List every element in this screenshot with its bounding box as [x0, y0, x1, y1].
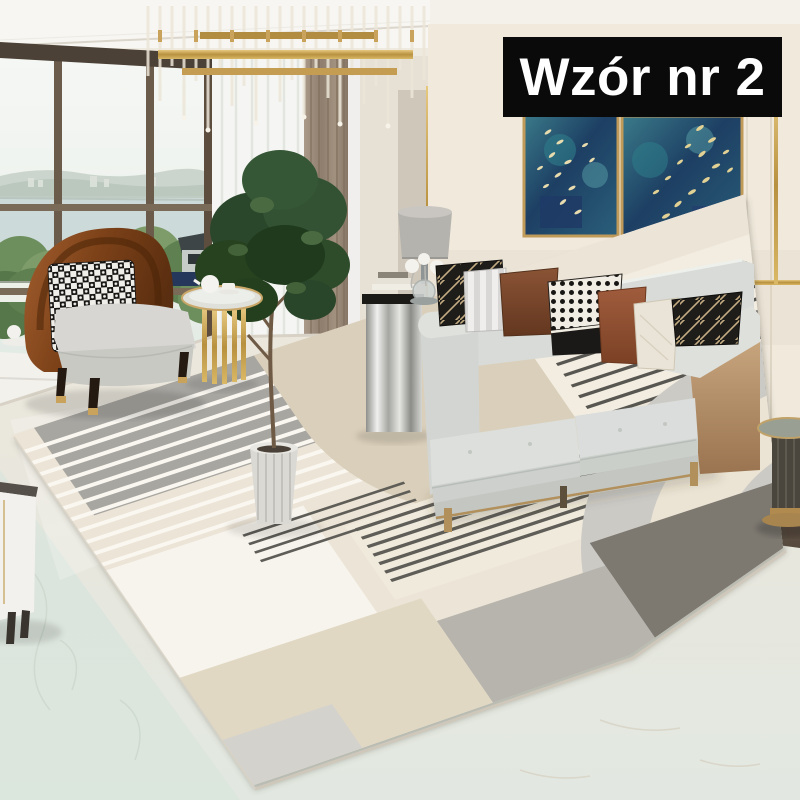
pillow-silver-striped [464, 268, 506, 332]
sofa-leg [560, 486, 567, 508]
sofa-leg [690, 462, 698, 486]
pattern-label-text: Wzór nr 2 [520, 47, 766, 108]
teapot [7, 325, 21, 339]
wall-art-left [524, 114, 618, 236]
pillow-cream [634, 298, 678, 370]
planter [250, 442, 298, 524]
pattern-label-badge: Wzór nr 2 [503, 37, 782, 117]
living-room-scene [0, 0, 800, 800]
product-photo: Wzór nr 2 [0, 0, 800, 800]
pillow-black-gold [672, 292, 742, 346]
sofa-leg [444, 508, 452, 532]
